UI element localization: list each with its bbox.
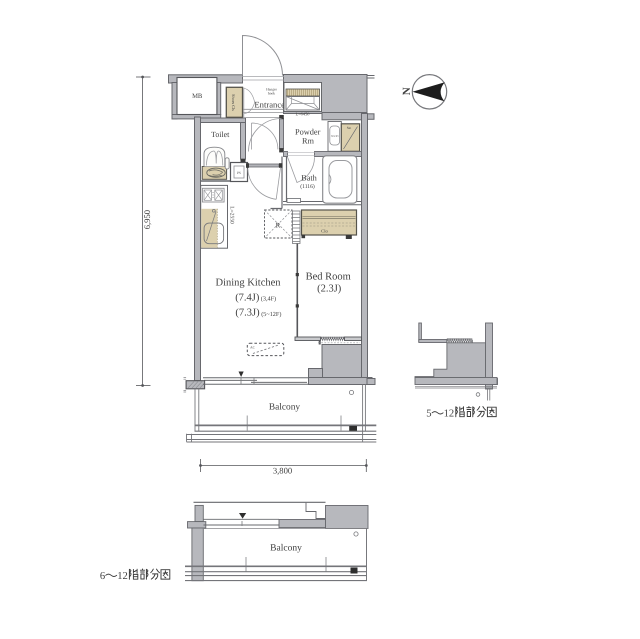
svg-text:(5~12F): (5~12F) [261, 311, 281, 318]
svg-text:3,800: 3,800 [273, 466, 292, 476]
svg-text:Balcony: Balcony [269, 403, 301, 413]
svg-text:Powder: Powder [295, 128, 321, 137]
svg-text:Bed Room: Bed Room [306, 271, 351, 282]
svg-text:(3,4F): (3,4F) [261, 295, 276, 302]
svg-text:5: 5 [426, 408, 431, 419]
svg-text:hook: hook [268, 92, 275, 96]
svg-text:(2.3J): (2.3J) [317, 284, 342, 295]
svg-text:6: 6 [100, 571, 105, 582]
svg-text:12: 12 [444, 408, 455, 419]
svg-text:N: N [401, 87, 413, 95]
svg-text:Dining Kitchen: Dining Kitchen [215, 278, 281, 289]
svg-text:6,950: 6,950 [142, 210, 152, 229]
svg-text:(7.3J): (7.3J) [235, 308, 260, 319]
svg-text:L=2550: L=2550 [229, 206, 235, 224]
svg-text:W-CD: W-CD [331, 135, 338, 138]
svg-text:Toilet: Toilet [211, 130, 230, 139]
svg-text:Bath: Bath [301, 174, 318, 183]
svg-text:(1116): (1116) [300, 184, 315, 190]
svg-text:(7.4J): (7.4J) [235, 292, 260, 303]
svg-text:PS: PS [237, 171, 241, 175]
svg-text:Shoes Cls: Shoes Cls [231, 94, 236, 111]
svg-text:AC: AC [250, 346, 255, 350]
svg-text:Clo: Clo [321, 229, 328, 234]
svg-text:MB: MB [192, 93, 203, 100]
svg-text:Balcony: Balcony [270, 544, 302, 554]
svg-text:R: R [276, 222, 281, 230]
svg-text:Rm: Rm [302, 137, 315, 146]
svg-text:Entrance: Entrance [254, 100, 285, 110]
svg-text:12: 12 [117, 571, 128, 582]
svg-text:L=6450: L=6450 [296, 111, 311, 116]
svg-text:Sto: Sto [347, 126, 352, 130]
